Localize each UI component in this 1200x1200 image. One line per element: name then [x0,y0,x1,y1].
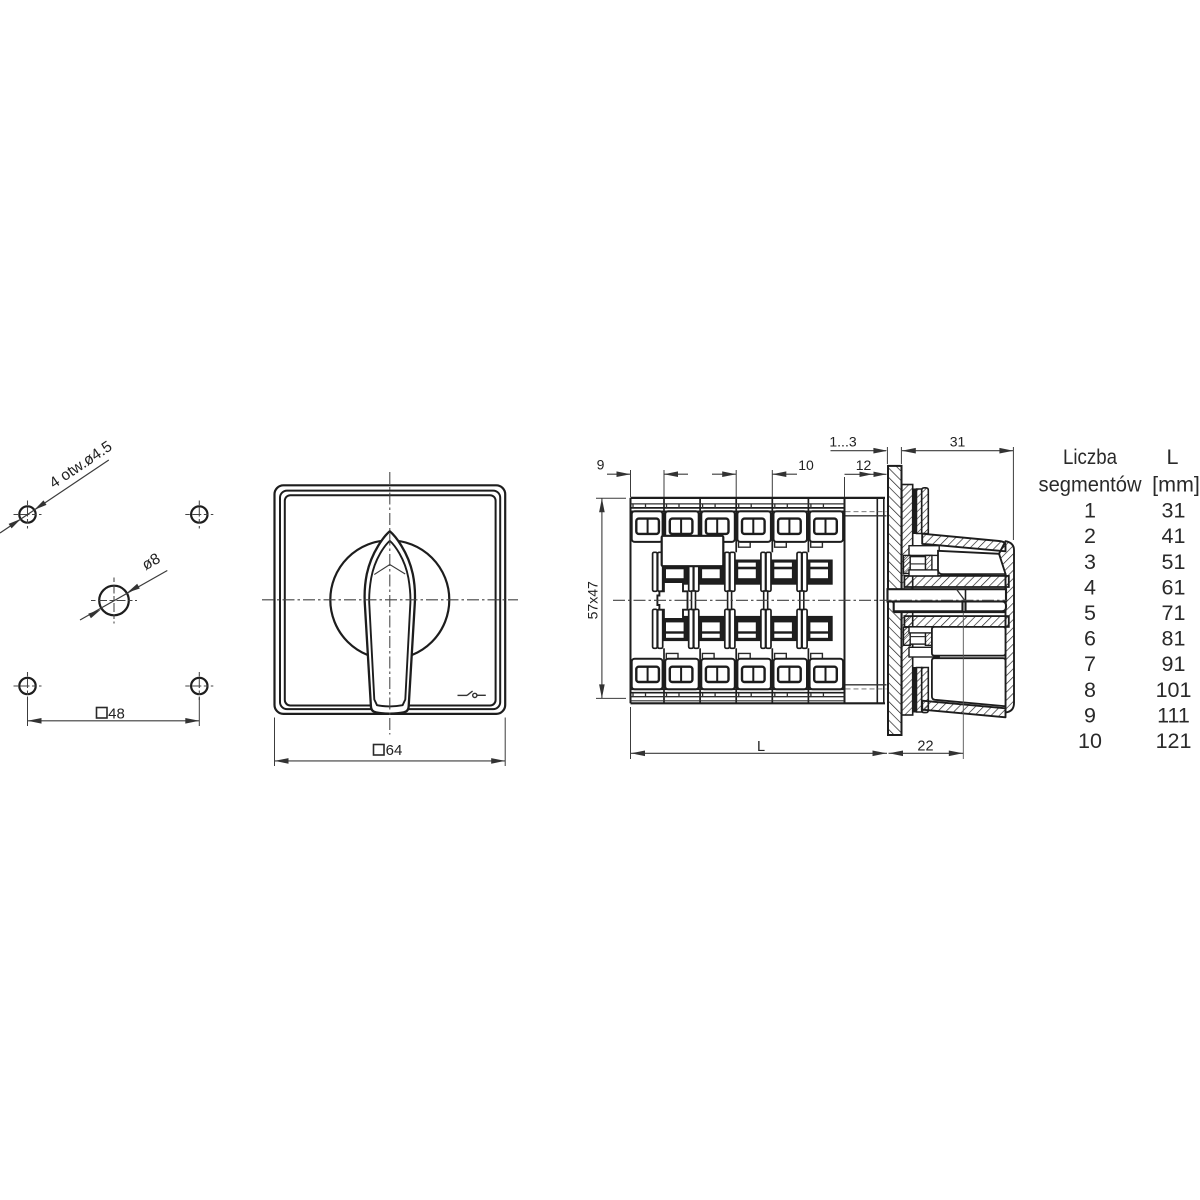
svg-text:64: 64 [386,742,403,759]
svg-text:6: 6 [1084,627,1096,651]
svg-text:31: 31 [1162,499,1186,523]
svg-text:81: 81 [1162,627,1186,651]
svg-text:1...3: 1...3 [829,433,856,449]
svg-text:111: 111 [1157,703,1190,727]
svg-text:8: 8 [1084,678,1096,702]
svg-text:31: 31 [950,433,966,449]
svg-text:10: 10 [798,457,814,473]
svg-text:57x47: 57x47 [585,581,601,619]
svg-text:22: 22 [917,739,933,755]
svg-text:segmentów: segmentów [1039,473,1142,497]
svg-text:L: L [757,739,765,755]
svg-text:4: 4 [1084,575,1096,599]
svg-text:9: 9 [1084,703,1096,727]
svg-text:[mm]: [mm] [1152,473,1200,497]
svg-text:3: 3 [1084,550,1096,574]
svg-text:91: 91 [1162,652,1186,676]
svg-text:48: 48 [108,706,125,723]
svg-text:61: 61 [1162,575,1186,599]
svg-text:41: 41 [1162,524,1186,548]
svg-text:10: 10 [1078,729,1102,753]
svg-text:9: 9 [597,457,605,473]
svg-text:71: 71 [1162,601,1186,625]
svg-text:12: 12 [856,457,872,473]
svg-text:5: 5 [1084,601,1096,625]
svg-text:7: 7 [1084,652,1096,676]
svg-text:Liczba: Liczba [1063,445,1117,469]
svg-text:51: 51 [1162,550,1186,574]
svg-text:L: L [1167,445,1179,469]
svg-text:101: 101 [1156,678,1192,702]
svg-text:1: 1 [1084,499,1096,523]
svg-text:121: 121 [1156,729,1192,753]
svg-text:2: 2 [1084,524,1096,548]
